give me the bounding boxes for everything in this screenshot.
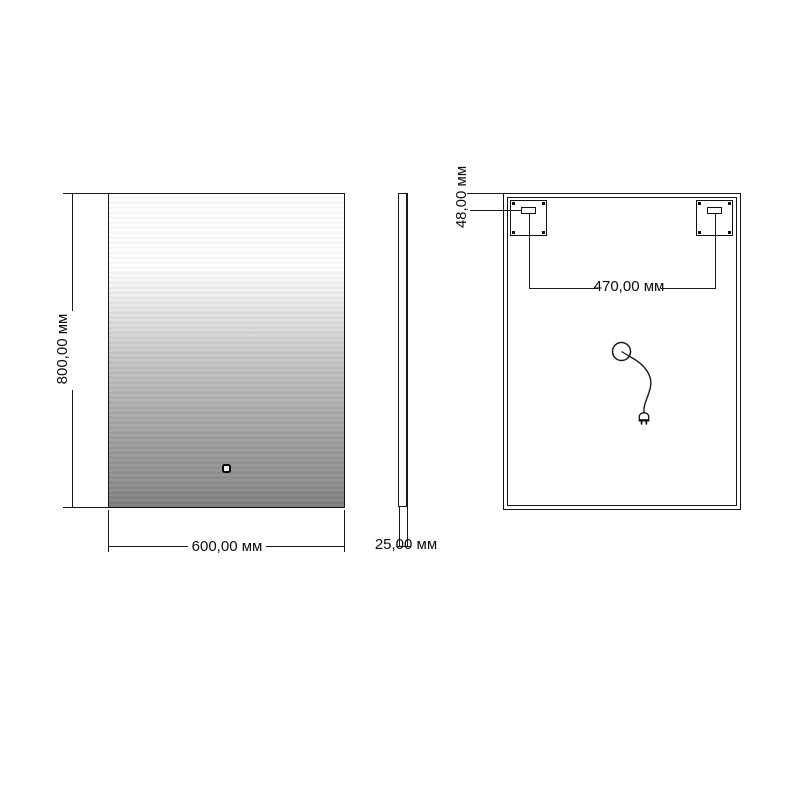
bracket-spacing-label: 470,00 мм	[579, 279, 679, 295]
screw-mark-icon	[542, 202, 545, 205]
height-dimension-line-lower	[72, 390, 73, 508]
mirror-front-face	[108, 193, 345, 508]
plug-prong-right	[646, 421, 648, 425]
height-dimension-label: 800,00 мм	[55, 299, 71, 399]
power-cable-assembly	[595, 333, 670, 433]
offset-extension-line-top	[467, 193, 503, 194]
screw-mark-icon	[512, 202, 515, 205]
extension-line-bottom	[63, 507, 108, 508]
screw-mark-icon	[542, 231, 545, 234]
spacing-extension-line-left	[529, 213, 530, 288]
width-dimension-line-left	[108, 546, 188, 547]
height-dimension-line-upper	[72, 193, 73, 311]
technical-drawing: 800,00 мм 600,00 мм 25,00 мм	[0, 0, 800, 800]
touch-sensor-icon	[222, 464, 231, 473]
width-dimension-label: 600,00 мм	[177, 539, 277, 555]
screw-mark-icon	[728, 231, 731, 234]
bracket-offset-label: 48,00 мм	[454, 147, 470, 247]
power-cord	[630, 357, 651, 413]
offset-extension-line-slot	[470, 210, 522, 211]
mirror-side-profile	[398, 193, 408, 507]
screw-mark-icon	[698, 202, 701, 205]
plug-base	[639, 419, 648, 421]
width-dimension-line-right	[266, 546, 345, 547]
spacing-extension-line-right	[715, 213, 716, 288]
screw-mark-icon	[512, 231, 515, 234]
plug-prong-left	[641, 421, 643, 425]
thickness-dimension-label: 25,00 мм	[356, 537, 456, 553]
screw-mark-icon	[698, 231, 701, 234]
extension-line-top	[63, 193, 108, 194]
screw-mark-icon	[728, 202, 731, 205]
